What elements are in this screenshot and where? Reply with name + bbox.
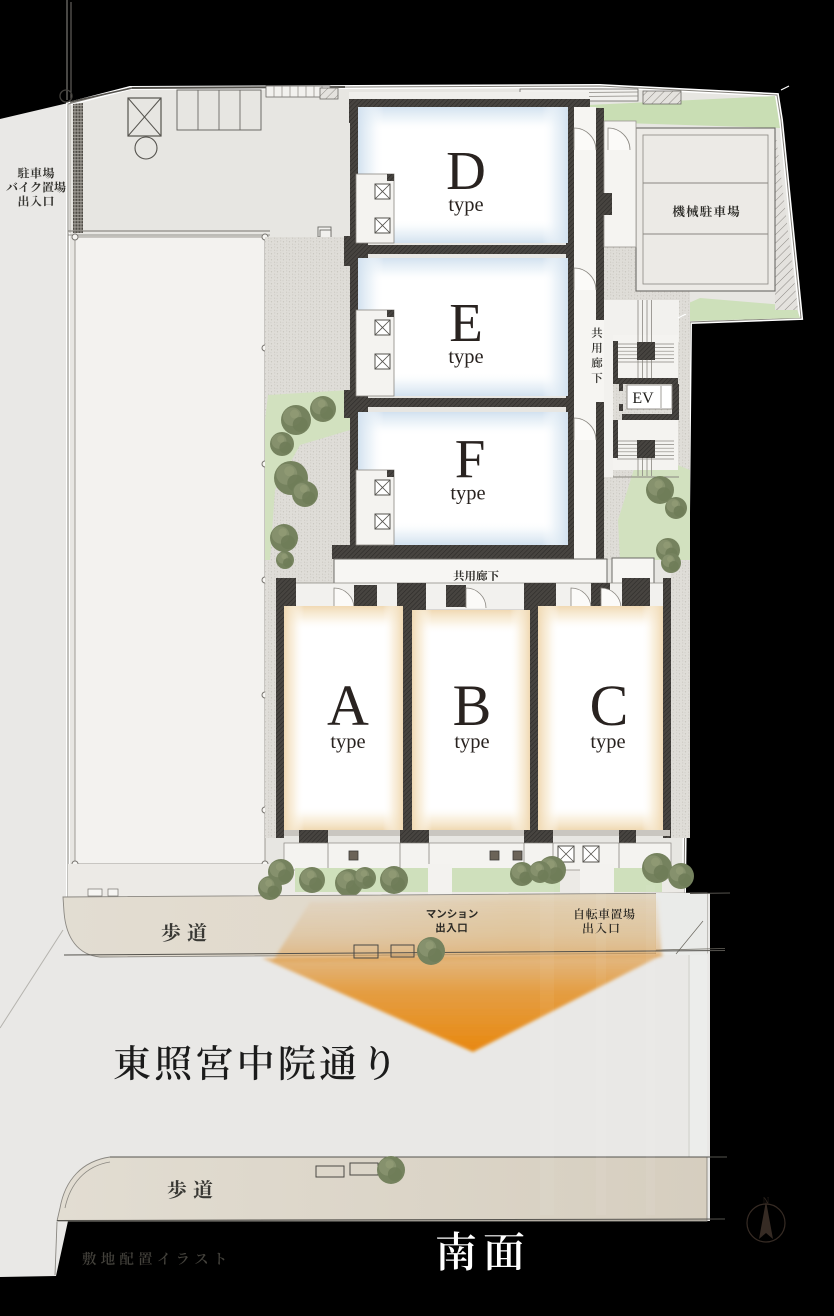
svg-text:type: type — [330, 731, 365, 753]
svg-text:F: F — [455, 429, 486, 490]
svg-text:E: E — [449, 292, 483, 353]
svg-text:D: D — [446, 140, 486, 201]
svg-text:EV: EV — [632, 390, 654, 407]
svg-text:type: type — [590, 731, 625, 753]
svg-text:A: A — [327, 673, 369, 738]
svg-text:type: type — [450, 483, 485, 505]
svg-text:B: B — [453, 673, 492, 738]
svg-text:type: type — [448, 194, 483, 216]
svg-text:type: type — [454, 731, 489, 753]
svg-text:type: type — [448, 346, 483, 368]
svg-text:N: N — [763, 1196, 770, 1206]
svg-text:C: C — [590, 673, 629, 738]
